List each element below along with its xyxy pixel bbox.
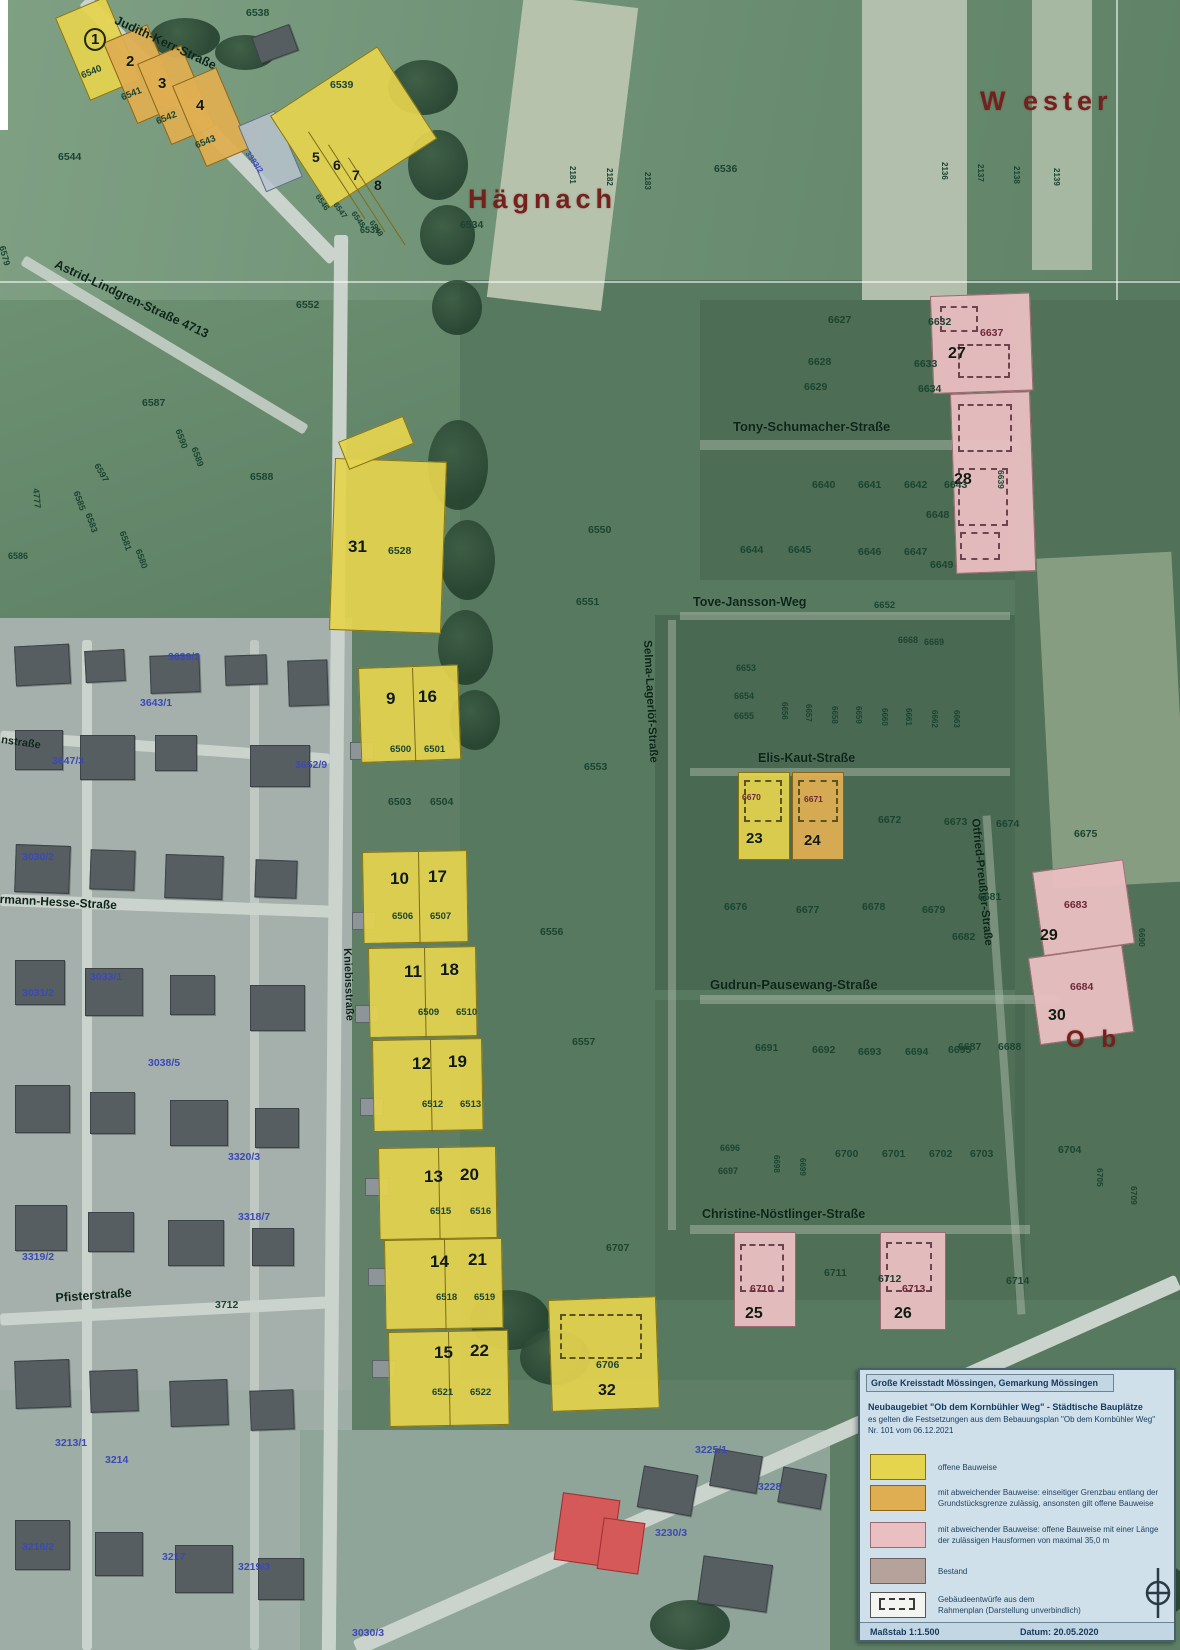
road <box>82 640 92 1650</box>
terrain-patch <box>300 1430 830 1650</box>
parcel-number-label: 6583 <box>84 512 99 534</box>
parcel-number-label: 6597 <box>92 462 110 484</box>
parcel-number-label: 6694 <box>905 1047 928 1058</box>
building-footprint <box>90 1092 135 1134</box>
street-name-label: Otfried-Preußler-Straße <box>969 818 994 946</box>
parcel-number-label: 6551 <box>576 597 599 608</box>
street-name-label: Tony-Schumacher-Straße <box>733 420 890 433</box>
parcel-number-label: 6629 <box>804 382 827 393</box>
legend-municipality: Große Kreisstadt Mössingen, Gemarkung Mö… <box>866 1374 1114 1392</box>
legend-swatch <box>870 1522 926 1548</box>
parcel-number-label: 6656 <box>780 702 788 720</box>
parcel-number-label: 6588 <box>250 472 273 483</box>
parcel-number-label: 6697 <box>718 1167 738 1176</box>
parcel-number-label: 6696 <box>720 1144 740 1153</box>
building-footprint <box>15 730 63 770</box>
street-name-label: Christine-Nöstlinger-Straße <box>702 1208 865 1221</box>
legend-item-label: mit abweichender Bauweise: offene Bauwei… <box>938 1524 1158 1546</box>
parcel-number-label: 6677 <box>796 905 819 916</box>
parcel-number-label: 2181 <box>568 166 576 184</box>
parcel-number-label: 6692 <box>812 1045 835 1056</box>
parcel-number-label: 6589 <box>190 446 205 468</box>
road <box>20 255 309 434</box>
legend-swatch <box>870 1454 926 1480</box>
parcel-number-label: 2137 <box>976 164 984 182</box>
legend-panel: Große Kreisstadt Mössingen, Gemarkung Mö… <box>858 1368 1176 1642</box>
building-footprint <box>170 975 215 1015</box>
parcel-number-label: 6698 <box>772 1155 780 1173</box>
building-footprint <box>95 1532 143 1576</box>
road <box>680 612 1010 620</box>
parcel-number-label: 6627 <box>828 315 851 326</box>
cadastral-number-blue: 3643/1 <box>140 698 172 709</box>
building-footprint <box>709 1448 763 1494</box>
parcel-number-label: 6552 <box>296 300 319 311</box>
dashed-building-outline <box>958 344 1010 378</box>
road <box>250 640 259 1650</box>
street-name-label: Pfisterstraße <box>55 1287 132 1305</box>
street-name-label: Gudrun-Pausewang-Straße <box>710 978 878 991</box>
parcel-number-label: 6503 <box>388 797 411 808</box>
parcel-number-label: 6682 <box>952 932 975 943</box>
building-footprint <box>85 968 143 1016</box>
parcel-number-label: 6628 <box>808 357 831 368</box>
parcel-number-label: 6691 <box>755 1043 778 1054</box>
parcel-number-label: 6701 <box>882 1149 905 1160</box>
building-footprint <box>14 844 71 894</box>
dashed-building-outline <box>960 532 1000 560</box>
cadastral-number-blue: 3219/3 <box>238 1562 270 1573</box>
street-name-label: Selma-Lagerlöf-Straße <box>641 640 659 763</box>
terrain-patch <box>0 281 1180 283</box>
legend-subtitle: es gelten die Festsetzungen aus dem Beba… <box>868 1415 1155 1424</box>
district-name-label: W ester <box>980 88 1113 115</box>
parcel-number-label: 6663 <box>952 710 960 728</box>
terrain-patch <box>1032 0 1092 270</box>
parcel-number-label: 6587 <box>142 398 165 409</box>
road <box>668 620 676 1230</box>
parcel-number-label: 6645 <box>788 545 811 556</box>
terrain-patch <box>0 0 8 130</box>
building-footprint <box>149 654 200 694</box>
cadastral-number-blue: 3647/3 <box>52 756 84 767</box>
parcel-number-label: 6531 <box>360 226 380 235</box>
cadastral-number-blue: 3319/2 <box>22 1252 54 1263</box>
building-footprint <box>250 745 310 787</box>
cadastral-number-blue: 3217 <box>162 1552 185 1563</box>
building-footprint <box>169 1379 229 1427</box>
dashed-outline-swatch <box>879 1598 915 1610</box>
street-name-label: Elis-Kaut-Straße <box>758 752 855 765</box>
date-label: Datum: 20.05.2020 <box>1020 1627 1099 1637</box>
parcel-number-label: 2136 <box>940 162 948 180</box>
parcel-number-label: 6702 <box>929 1149 952 1160</box>
legend-title: Neubaugebiet "Ob dem Kornbühler Weg" - S… <box>868 1402 1143 1412</box>
parcel-number-label: 6668 <box>898 636 918 645</box>
street-name-label: rmann-Hesse-Straße <box>0 893 117 911</box>
parcel-number-label: 6678 <box>862 902 885 913</box>
dashed-building-outline <box>798 780 838 822</box>
tree-canopy <box>432 280 482 335</box>
terrain-patch <box>655 1000 1025 1300</box>
parcel-number-label: 3712 <box>215 1300 238 1311</box>
legend-item-label: mit abweichender Bauweise: einseitiger G… <box>938 1487 1158 1509</box>
road <box>983 815 1026 1314</box>
legend-item-label: offene Bauweise <box>938 1462 997 1473</box>
parcel-number-label: 6655 <box>734 712 754 721</box>
cadastral-number-blue: 3033/1 <box>90 972 122 983</box>
parcel-number-label: 6590 <box>174 428 189 450</box>
cadastral-number-blue: 3213/1 <box>55 1438 87 1449</box>
parcel-number-label: 6548 <box>349 210 366 229</box>
parcel-number-label: 6679 <box>922 905 945 916</box>
parcel-number-label: 6658 <box>830 706 838 724</box>
tree-canopy <box>650 1600 730 1650</box>
tree-canopy <box>150 18 220 58</box>
parcel-number-label: 6556 <box>540 927 563 938</box>
parcel-number-label: 6652 <box>874 601 895 611</box>
cadastral-number-blue: 3230/3 <box>655 1528 687 1539</box>
building-footprint <box>80 735 135 780</box>
parcel-number-label: 6640 <box>812 480 835 491</box>
parcel-number-label: 2182 <box>605 168 613 186</box>
parcel-number-label: 2183 <box>643 172 651 190</box>
building-footprint <box>637 1466 698 1517</box>
building-footprint <box>168 1220 224 1266</box>
site-plan-map: HägnachW esterO bJudith-Kerr-StraßeAstri… <box>0 0 1180 1650</box>
building-footprint <box>175 1545 233 1593</box>
terrain-patch <box>0 618 352 1650</box>
terrain-patch <box>0 1390 352 1650</box>
dashed-building-outline <box>740 1244 784 1292</box>
terrain-patch <box>1116 0 1118 300</box>
parcel-number-label: 6700 <box>835 1149 858 1160</box>
building-footprint <box>255 1108 299 1148</box>
parcel-number-label: 6690 <box>1138 928 1147 947</box>
building-footprint <box>224 654 267 685</box>
scale-label: Maßstab 1:1.500 <box>870 1627 940 1637</box>
parcel-number-label: 2138 <box>1012 166 1020 184</box>
building-footprint <box>14 1359 71 1409</box>
legend-swatch <box>870 1485 926 1511</box>
building-footprint <box>777 1466 827 1509</box>
parcel-number-label: 6695 <box>948 1045 971 1056</box>
cadastral-number-blue: 3652/9 <box>295 760 327 771</box>
building-footprint <box>287 659 329 706</box>
legend-swatch <box>870 1558 926 1584</box>
street-name-label: Astrid-Lindgren-Straße 4713 <box>53 258 211 340</box>
parcel-number-label: 6688 <box>998 1042 1021 1053</box>
legend-footer: Maßstab 1:1.500 Datum: 20.05.2020 <box>860 1622 1174 1640</box>
tree-canopy <box>420 205 475 265</box>
parcel-number-label: 6538 <box>246 8 269 19</box>
parcel-number-label: 4777 <box>31 488 42 509</box>
building-footprint <box>15 960 65 1005</box>
parcel-highlight <box>358 665 461 763</box>
cadastral-number-blue: 3216/2 <box>22 1542 54 1553</box>
parcel-number-label: 6674 <box>996 819 1019 830</box>
building-footprint <box>84 649 126 683</box>
parcel-number-label: 6693 <box>858 1047 881 1058</box>
parcel-number-label: 6585 <box>72 490 87 512</box>
building-footprint <box>15 1085 70 1133</box>
parcel-number-label: 6649 <box>930 560 953 571</box>
parcel-number-label: 6644 <box>740 545 763 556</box>
parcel-number-label: 6676 <box>724 902 747 913</box>
building-footprint <box>164 854 224 900</box>
terrain-patch <box>1036 552 1180 889</box>
parcel-highlight <box>368 946 478 1038</box>
parcel-number-label: 6675 <box>1074 829 1097 840</box>
building-footprint <box>254 859 297 898</box>
cadastral-number-blue: 3318/7 <box>238 1212 270 1223</box>
cadastral-number-blue: 3031/2 <box>22 988 54 999</box>
cadastral-number-blue: 3030/2 <box>22 852 54 863</box>
north-compass-icon <box>1144 1568 1172 1618</box>
parcel-number-label: 6580 <box>134 548 149 570</box>
parcel-number-label: 6711 <box>824 1268 847 1279</box>
parcel-number-label: 6687 <box>958 1042 981 1053</box>
parcel-number-label: 6581 <box>118 530 133 552</box>
parcel-number-label: 6714 <box>1006 1276 1029 1287</box>
parcel-number-label: 6673 <box>944 817 967 828</box>
cadastral-number-blue: 3225/1 <box>695 1445 727 1456</box>
parcel-number-label: 6659 <box>854 706 862 724</box>
parcel-number-label: 6536 <box>714 164 737 175</box>
tree-canopy <box>440 520 495 600</box>
dashed-building-outline <box>560 1314 642 1359</box>
building-footprint <box>155 735 197 771</box>
parcel-number-label: 2139 <box>1052 168 1060 186</box>
plot-number: 8 <box>374 178 382 192</box>
terrain-patch <box>862 0 967 300</box>
dashed-building-outline <box>958 468 1008 526</box>
dashed-building-outline <box>886 1242 932 1292</box>
district-name-label: Hägnach <box>468 186 617 213</box>
cadastral-number-blue: 3030/3 <box>352 1628 384 1639</box>
road <box>0 1296 330 1325</box>
red-building-footprint <box>554 1492 621 1567</box>
parcel-number-label: 6504 <box>430 797 453 808</box>
parcel-number-label: 6660 <box>880 708 888 726</box>
parcel-number-label: 6653 <box>736 664 756 673</box>
cadastral-number-blue: 3214 <box>105 1455 128 1466</box>
red-building-footprint <box>597 1517 646 1574</box>
legend-swatch <box>870 1592 926 1618</box>
building-footprint <box>252 1228 294 1266</box>
parcel-number-label: 6579 <box>0 245 11 267</box>
parcel-highlight <box>1028 945 1134 1045</box>
street-name-label: Tove-Jansson-Weg <box>693 596 806 609</box>
building-footprint <box>14 644 71 687</box>
building-footprint <box>15 1520 70 1570</box>
terrain-patch <box>1015 300 1180 1300</box>
tree-canopy <box>215 35 275 70</box>
building-footprint <box>250 985 305 1031</box>
building-footprint <box>258 1558 304 1600</box>
parcel-number-label: 6657 <box>804 704 812 722</box>
parcel-number-label: 6642 <box>904 480 927 491</box>
dashed-building-outline <box>958 404 1012 452</box>
parcel-number-label: 6661 <box>904 708 912 726</box>
parcel-number-label: 6544 <box>58 152 81 163</box>
legend-item-label: Bestand <box>938 1566 967 1577</box>
legend-item-label: Gebäudeentwürfe aus demRahmenplan (Darst… <box>938 1594 1081 1616</box>
parcel-number-label: 6553 <box>584 762 607 773</box>
parcel-number-label: 6646 <box>858 547 881 558</box>
building-footprint <box>170 1100 228 1146</box>
street-name-label: nstraße <box>0 735 41 751</box>
parcel-number-label: 6586 <box>8 552 28 561</box>
parcel-number-label: 6534 <box>460 220 483 231</box>
dashed-building-outline <box>940 306 978 332</box>
parcel-number-label: 6647 <box>904 547 927 558</box>
parcel-number-label: 6704 <box>1058 1145 1081 1156</box>
building-footprint <box>89 849 135 891</box>
parcel-number-label: 6654 <box>734 692 754 701</box>
parcel-number-label: 6641 <box>858 480 881 491</box>
parcel-highlight <box>329 458 447 634</box>
parcel-number-label: 6550 <box>588 525 611 536</box>
building-footprint <box>89 1369 138 1413</box>
parcel-number-label: 6699 <box>798 1158 806 1176</box>
cadastral-number-blue: 3639/2 <box>168 652 200 663</box>
parcel-number-label: 6681 <box>978 892 1001 903</box>
parcel-number-label: 6709 <box>1130 1186 1139 1205</box>
building-footprint <box>15 1205 67 1251</box>
building-footprint <box>251 24 298 64</box>
parcel-number-label: 6648 <box>926 510 949 521</box>
building-footprint <box>249 1389 294 1431</box>
parcel-number-label: 6705 <box>1096 1168 1105 1187</box>
parcel-number-label: 6662 <box>930 710 938 728</box>
cadastral-number-blue: 3228 <box>758 1482 781 1493</box>
parcel-number-label: 6669 <box>924 638 944 647</box>
cadastral-number-blue: 3038/5 <box>148 1058 180 1069</box>
parcel-highlight <box>362 850 469 944</box>
parcel-highlight <box>1032 859 1135 956</box>
road <box>0 894 340 918</box>
building-footprint <box>697 1555 773 1612</box>
parcel-number-label: 6672 <box>878 815 901 826</box>
building-footprint <box>88 1212 134 1252</box>
cadastral-number-blue: 3320/3 <box>228 1152 260 1163</box>
parcel-number-label: 6707 <box>606 1243 629 1254</box>
parcel-highlight <box>372 1038 484 1132</box>
road <box>0 731 330 765</box>
road <box>700 995 1060 1004</box>
legend-subtitle2: Nr. 101 vom 06.12.2021 <box>868 1426 953 1435</box>
parcel-number-label: 6703 <box>970 1149 993 1160</box>
dashed-building-outline <box>744 780 782 822</box>
street-name-label: Kniebisstraße <box>341 948 355 1021</box>
parcel-number-label: 6557 <box>572 1037 595 1048</box>
terrain-patch <box>487 0 638 311</box>
